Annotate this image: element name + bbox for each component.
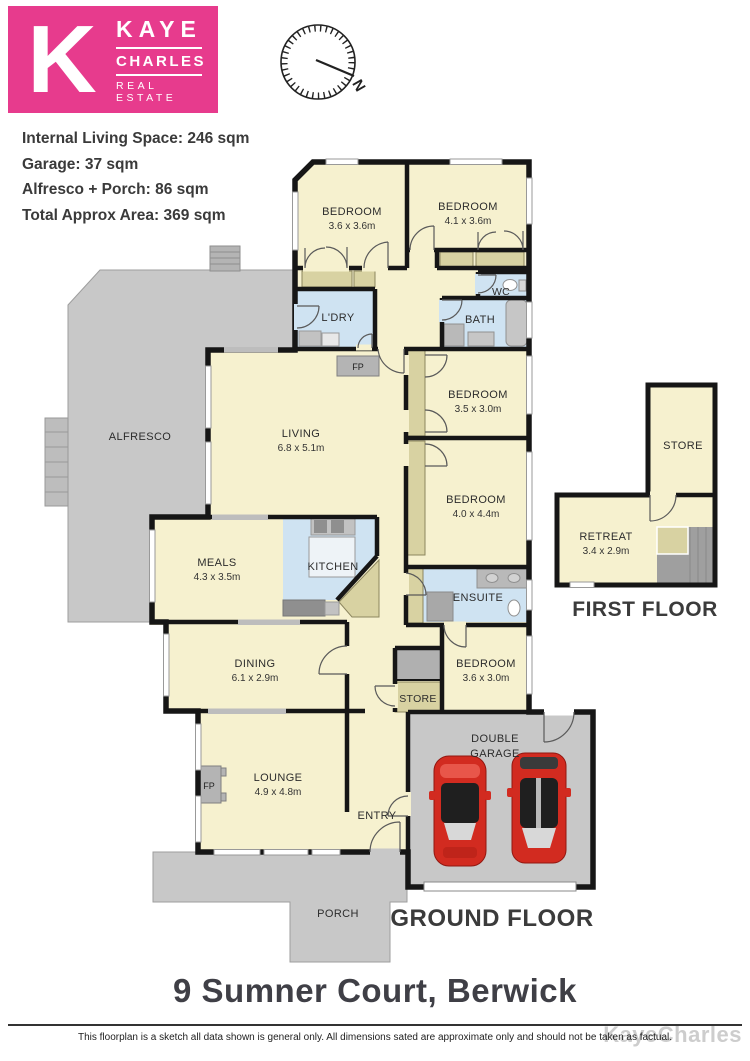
fireplace-lounge-tab xyxy=(221,768,226,776)
bed2-robe xyxy=(440,252,473,267)
bedroom2-label: BEDROOM xyxy=(438,201,498,213)
ensuite-toilet-icon xyxy=(508,600,520,616)
garage-label-line2: GARAGE xyxy=(470,748,519,760)
porch-label: PORCH xyxy=(317,908,359,920)
bedroom4-dims: 4.0 x 4.4m xyxy=(453,509,500,520)
window xyxy=(206,366,212,428)
car-sedan-icon xyxy=(429,756,491,866)
kitchen-appliance2 xyxy=(325,602,339,615)
ensuite-basin xyxy=(486,574,498,583)
fireplace-lounge-tab xyxy=(221,793,226,801)
store-first-label: STORE xyxy=(663,440,703,452)
cooktop-icon xyxy=(314,520,327,533)
bedroom1-dims: 3.6 x 3.6m xyxy=(329,221,376,232)
lounge-dims: 4.9 x 4.8m xyxy=(255,787,302,798)
sill xyxy=(208,709,286,715)
window xyxy=(527,302,533,338)
window xyxy=(570,582,594,588)
bed1-robe xyxy=(302,271,352,287)
washer-icon xyxy=(299,331,321,346)
floorplan-page: K KAYE CHARLES REAL ESTATE N Internal Li… xyxy=(0,0,750,1061)
laundry-label: L'DRY xyxy=(321,312,355,324)
bedroom2-dims: 4.1 x 3.6m xyxy=(445,216,492,227)
window xyxy=(150,530,156,602)
window xyxy=(312,850,340,856)
window xyxy=(450,159,502,165)
sill xyxy=(212,515,268,521)
ensuite-basin xyxy=(508,574,520,583)
dining-label: DINING xyxy=(235,658,276,670)
meals-label: MEALS xyxy=(197,557,236,569)
sill xyxy=(238,620,300,626)
fireplace-lounge-label: FP xyxy=(203,781,215,791)
kitchen-label: KITCHEN xyxy=(307,561,358,573)
garage-label-line1: DOUBLE xyxy=(471,733,519,745)
bath-vanity xyxy=(444,324,464,346)
wc-label: WC xyxy=(492,286,510,298)
window xyxy=(527,356,533,414)
window xyxy=(264,850,308,856)
bedroom4-label: BEDROOM xyxy=(446,494,506,506)
window xyxy=(326,159,358,165)
living-label: LIVING xyxy=(282,428,320,440)
dryer-icon xyxy=(322,333,339,346)
cooktop-icon xyxy=(331,520,344,533)
area-porch xyxy=(153,852,407,962)
window xyxy=(527,580,533,610)
fireplace-living-label: FP xyxy=(352,362,364,372)
bed1-robe2 xyxy=(354,271,375,287)
garage-roller-door xyxy=(424,882,576,891)
wc-toilet-tank xyxy=(519,280,526,291)
car-sports-icon xyxy=(507,753,571,863)
alfresco-label: ALFRESCO xyxy=(109,431,172,443)
window xyxy=(206,442,212,504)
dining-dims: 6.1 x 2.9m xyxy=(232,673,279,684)
floorplan-drawing: BEDROOM 3.6 x 3.6m BEDROOM 4.1 x 3.6m WC… xyxy=(0,0,750,1061)
bedroom3-dims: 3.5 x 3.0m xyxy=(455,404,502,415)
sill xyxy=(224,347,278,353)
disclaimer-text: This floorplan is a sketch all data show… xyxy=(0,1032,750,1043)
bedroom3-label: BEDROOM xyxy=(448,389,508,401)
bedroom5-label: BEDROOM xyxy=(456,658,516,670)
kitchen-appliance xyxy=(283,600,325,616)
shower-icon xyxy=(427,592,453,621)
window xyxy=(164,634,170,696)
bath-label: BATH xyxy=(465,314,495,326)
lounge-label: LOUNGE xyxy=(254,772,303,784)
window xyxy=(293,192,299,250)
bedroom5-dims: 3.6 x 3.0m xyxy=(463,673,510,684)
entry-label: ENTRY xyxy=(357,810,396,822)
bed3-robe xyxy=(407,350,425,436)
ground-floor-label: GROUND FLOOR xyxy=(390,905,593,932)
window xyxy=(527,452,533,540)
window xyxy=(527,178,533,224)
stairs-landing xyxy=(657,527,688,554)
ensuite-label: ENSUITE xyxy=(453,592,503,604)
living-dims: 6.8 x 5.1m xyxy=(278,443,325,454)
window xyxy=(214,850,260,856)
meals-dims: 4.3 x 3.5m xyxy=(194,572,241,583)
bath-cabinet xyxy=(468,332,494,346)
bed2-robe2 xyxy=(476,252,524,267)
address-title: 9 Sumner Court, Berwick xyxy=(0,972,750,1010)
window xyxy=(196,724,202,770)
bedroom1-label: BEDROOM xyxy=(322,206,382,218)
window xyxy=(196,796,202,842)
retreat-label: RETREAT xyxy=(579,531,632,543)
bed5-storage-gray xyxy=(395,648,442,680)
retreat-dims: 3.4 x 2.9m xyxy=(583,546,630,557)
first-floor-label: FIRST FLOOR xyxy=(572,598,718,621)
window xyxy=(527,636,533,694)
bed4-robe xyxy=(407,441,425,555)
store-ground-label: STORE xyxy=(399,693,436,705)
bathtub-icon xyxy=(506,300,527,346)
